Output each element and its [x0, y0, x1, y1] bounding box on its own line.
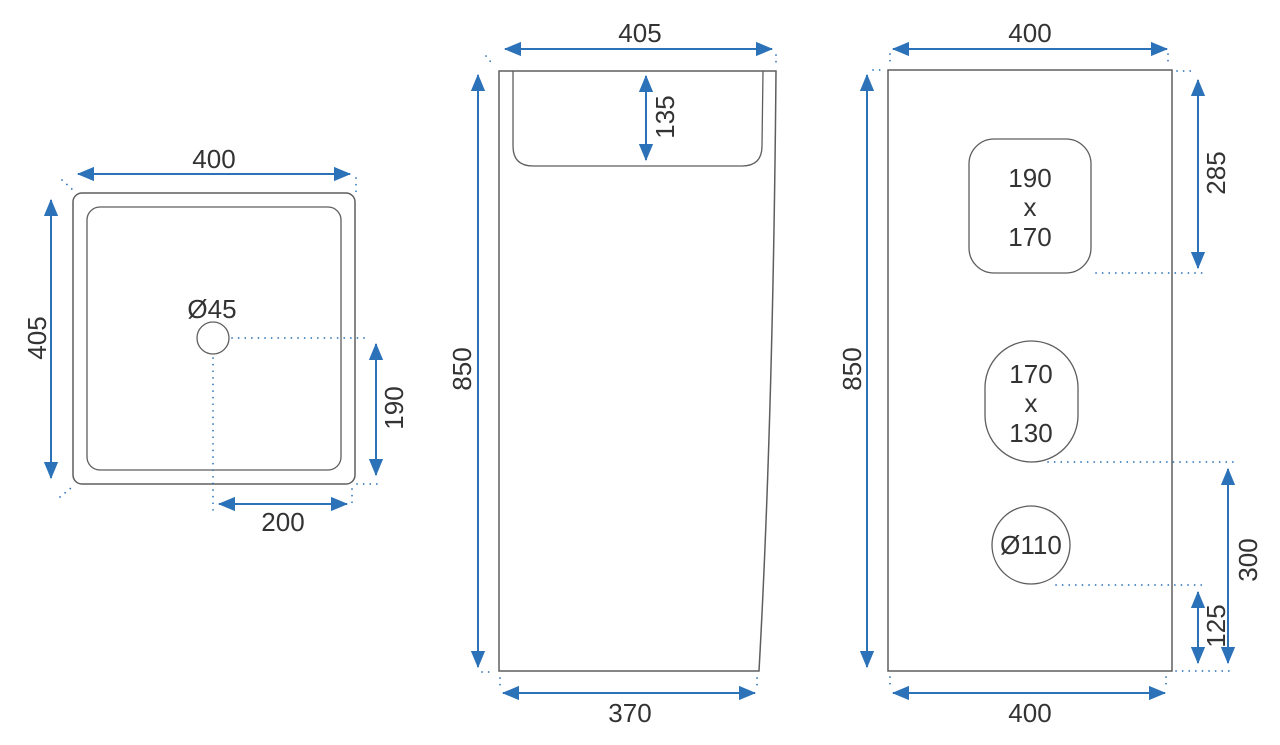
- top-view-drain-side-label: 200: [261, 507, 304, 537]
- corner-dots-bl: [60, 488, 71, 497]
- front-view-height-label: 850: [837, 347, 867, 390]
- top-view: 400 405 Ø45 190 200: [22, 144, 409, 537]
- oval-cutout-label-w: 130: [1009, 418, 1052, 448]
- drawing-svg: 400 405 Ø45 190 200 405 135 850: [0, 0, 1280, 745]
- top-view-drain-hole: [197, 322, 229, 354]
- top-view-outer-rim: [73, 193, 355, 484]
- tap-hole-label: Ø110: [1000, 530, 1062, 560]
- dimension-drawing: 400 405 Ø45 190 200 405 135 850: [0, 0, 1280, 745]
- side-corner-dots-tl: [486, 56, 494, 66]
- side-view-basin-depth-label: 135: [650, 95, 680, 138]
- side-view-basin-section: [513, 71, 763, 166]
- rect-cutout-label-x: x: [1024, 192, 1037, 222]
- oval-cutout-offset-label: 300: [1233, 538, 1263, 581]
- corner-dots-tl: [62, 180, 74, 191]
- side-view: 405 135 850 370: [447, 18, 776, 728]
- rect-cutout-label-w: 170: [1008, 222, 1051, 252]
- top-view-drain-back-label: 190: [379, 386, 409, 429]
- rect-cutout-label-h: 190: [1008, 163, 1051, 193]
- top-view-drain-diameter-label: Ø45: [187, 294, 236, 324]
- front-view-top-width-label: 400: [1008, 18, 1051, 48]
- tap-hole-offset-label: 125: [1201, 604, 1231, 647]
- rect-cutout-offset-label: 285: [1201, 151, 1231, 194]
- top-view-depth-label: 405: [22, 316, 52, 359]
- top-view-inner-basin: [87, 207, 341, 470]
- side-view-bottom-depth-label: 370: [608, 698, 651, 728]
- top-view-width-label: 400: [192, 144, 235, 174]
- front-view-bottom-width-label: 400: [1008, 698, 1051, 728]
- oval-cutout-label-h: 170: [1009, 359, 1052, 389]
- front-view: 190 x 170 170 x 130 Ø110 400 850 285 300…: [837, 18, 1263, 728]
- oval-cutout-label-x: x: [1025, 388, 1038, 418]
- side-view-outline: [499, 71, 776, 671]
- side-view-top-depth-label: 405: [618, 18, 661, 48]
- side-view-height-label: 850: [447, 347, 477, 390]
